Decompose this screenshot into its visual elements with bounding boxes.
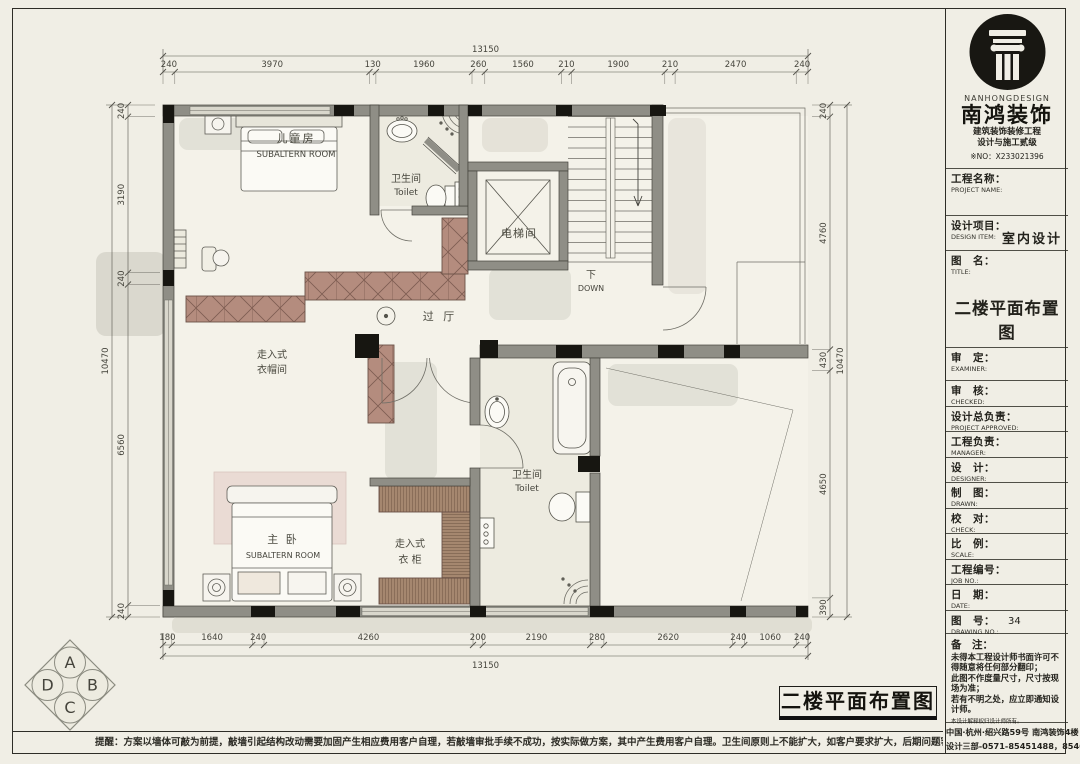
svg-text:240: 240 [819, 103, 829, 119]
dim-right-total: 10470 [836, 347, 846, 374]
title-block: NANHONGDESIGN 南鸿装饰 建筑装饰装修工程 设计与施工贰级 ※NO：… [945, 8, 1068, 754]
brand-name-zh: 南鸿装饰 [946, 103, 1068, 127]
label-master-room: 主 卧 [267, 533, 299, 546]
floor-plan-drawing: 儿童房 SUBALTERN ROOM 卫生间 Toilet 电梯间 下 DOWN… [0, 0, 945, 764]
dim-bottom-total: 13150 [472, 661, 499, 671]
compass-letter-b: B [87, 676, 98, 695]
svg-text:1640: 1640 [201, 633, 223, 643]
notes-line: 此图不作度量尺寸，尺寸按现场为准； [951, 673, 1064, 694]
svg-text:6560: 6560 [117, 434, 127, 456]
drawing-title-value: 二楼平面布置图 [946, 295, 1068, 343]
field-label: 审 核： [951, 383, 1068, 398]
svg-text:390: 390 [819, 599, 829, 615]
field-sublabel: PROJECT NAME: [951, 186, 1068, 194]
svg-text:430: 430 [819, 352, 829, 368]
field-label: 设 计： [951, 460, 1068, 475]
label-elevator: 电梯间 [501, 227, 537, 240]
label-stairs-down-en: DOWN [578, 284, 604, 293]
label-stairs-down: 下 [586, 270, 596, 281]
label-toilet-master-en: Toilet [514, 484, 539, 494]
compass-letter-d: D [41, 676, 53, 695]
field-check: 校 对： CHECK: [946, 508, 1068, 534]
field-sublabel: TITLE: [951, 268, 1068, 276]
dim-top-total: 13150 [472, 45, 499, 55]
field-label: 校 对： [951, 511, 1068, 526]
brand-cert-line1: 建筑装饰装修工程 [946, 127, 1068, 138]
svg-text:240: 240 [161, 60, 177, 70]
svg-text:240: 240 [117, 270, 127, 286]
field-label: 图 名： [951, 253, 1068, 268]
field-checked: 审 核： CHECKED: [946, 380, 1068, 406]
field-label: 比 例： [951, 536, 1068, 551]
svg-text:180: 180 [159, 633, 175, 643]
label-children-room-en: SUBALTERN ROOM [257, 150, 336, 160]
field-design-item: 设计项目： DESIGN ITEM: 室内设计 [946, 215, 1068, 250]
notes-line: 未得本工程设计师书面许可不得随意将任何部分翻印； [951, 652, 1064, 673]
label-hall: 过 厅 [423, 310, 458, 323]
field-drawing-title: 图 名： TITLE: 二楼平面布置图 [946, 250, 1068, 347]
svg-text:240: 240 [250, 633, 266, 643]
field-project-approved: 设计总负责： PROJECT APPROVED: [946, 406, 1068, 432]
notes-label: 备 注： [951, 637, 1064, 652]
label-master-room-en: SUBALTERN ROOM [246, 551, 320, 560]
field-label: 工程编号： [951, 562, 1068, 577]
svg-text:200: 200 [470, 633, 486, 643]
field-manager: 工程负责： MANAGER: [946, 431, 1068, 457]
column-logo-icon [946, 8, 1069, 94]
svg-text:130: 130 [365, 60, 381, 70]
svg-text:3190: 3190 [117, 184, 127, 206]
svg-text:240: 240 [117, 103, 127, 119]
field-date: 日 期： DATE: [946, 584, 1068, 610]
field-project-name: 工程名称： PROJECT NAME: [946, 168, 1068, 215]
svg-text:2190: 2190 [526, 633, 548, 643]
label-toilet-top: 卫生间 [391, 172, 421, 185]
field-drawn: 制 图： DRAWN: [946, 482, 1068, 508]
svg-text:3970: 3970 [261, 60, 283, 70]
field-label: 日 期： [951, 587, 1068, 602]
address-line1: 中国·杭州·绍兴路59号 南鸿装饰4楼 [946, 725, 1068, 739]
company-logo: NANHONGDESIGN 南鸿装饰 建筑装饰装修工程 设计与施工贰级 ※NO：… [946, 8, 1068, 168]
label-cloakroom-1: 走入式 [257, 348, 287, 361]
drawing-number-value: 34 [1008, 616, 1021, 627]
svg-text:210: 210 [662, 60, 678, 70]
field-scale: 比 例： SCALE: [946, 533, 1068, 559]
field-label: 工程名称： [951, 171, 1068, 186]
label-closet-1: 走入式 [395, 537, 425, 550]
label-toilet-master: 卫生间 [512, 468, 542, 481]
svg-text:4260: 4260 [358, 633, 380, 643]
label-closet-2: 衣 柜 [398, 553, 421, 566]
disclaimer-strip: 提醒：方案以墙体可敲为前提，敲墙引起结构改动需要加固产生相应费用客户自理，若敲墙… [13, 731, 943, 754]
field-job-no: 工程编号： JOB NO.: [946, 559, 1068, 585]
svg-text:4650: 4650 [819, 473, 829, 495]
svg-text:2620: 2620 [657, 633, 679, 643]
plan-title-stamp: 二楼平面布置图 [779, 686, 937, 720]
svg-text:1060: 1060 [759, 633, 781, 643]
field-drawing-no: 图 号： DRAWING NO.: 34 [946, 610, 1068, 633]
field-examiner: 审 定： EXAMINER: [946, 347, 1068, 380]
company-address: 中国·杭州·绍兴路59号 南鸿装饰4楼 设计三部-0571-85451488，8… [946, 722, 1068, 755]
label-children-room: 儿童房 [277, 131, 316, 145]
svg-text:280: 280 [589, 633, 605, 643]
field-value: 室内设计 [1002, 228, 1062, 247]
brand-license-no: ※NO：X233021396 [946, 151, 1068, 162]
label-cloakroom-2: 衣帽间 [257, 363, 287, 376]
svg-text:4760: 4760 [819, 222, 829, 244]
field-label: 制 图： [951, 485, 1068, 500]
field-sublabel: DRAWING NO.: [951, 628, 1068, 636]
field-label: 工程负责： [951, 434, 1068, 449]
elevator-shaft [486, 180, 550, 254]
svg-text:240: 240 [730, 633, 746, 643]
svg-text:2470: 2470 [725, 60, 747, 70]
drawing-sheet: 儿童房 SUBALTERN ROOM 卫生间 Toilet 电梯间 下 DOWN… [0, 0, 1080, 764]
compass-letter-c: C [64, 698, 75, 717]
field-label: 审 定： [951, 350, 1068, 365]
svg-text:210: 210 [558, 60, 574, 70]
label-toilet-top-en: Toilet [393, 188, 418, 198]
field-label: 设计总负责： [951, 409, 1068, 424]
field-sublabel: EXAMINER: [951, 365, 1068, 373]
compass-letter-a: A [65, 653, 76, 672]
svg-text:1900: 1900 [607, 60, 629, 70]
svg-text:240: 240 [794, 60, 810, 70]
svg-text:240: 240 [117, 603, 127, 619]
svg-text:260: 260 [470, 60, 486, 70]
svg-text:240: 240 [794, 633, 810, 643]
brand-cert-line2: 设计与施工贰级 [946, 138, 1068, 149]
axis-compass: A D C B [25, 640, 115, 730]
dim-left-total: 10470 [101, 347, 111, 374]
svg-text:1560: 1560 [512, 60, 534, 70]
notes-line: 若有不明之处，应立即通知设计师。 [951, 694, 1064, 715]
notes-block: 备 注： 未得本工程设计师书面许可不得随意将任何部分翻印； 此图不作度量尺寸，尺… [946, 633, 1068, 722]
address-line2: 设计三部-0571-85451488，85462450 [946, 739, 1068, 753]
field-designer: 设 计： DESIGNER: [946, 457, 1068, 483]
svg-text:1960: 1960 [413, 60, 435, 70]
brand-name-en: NANHONGDESIGN [946, 94, 1068, 103]
